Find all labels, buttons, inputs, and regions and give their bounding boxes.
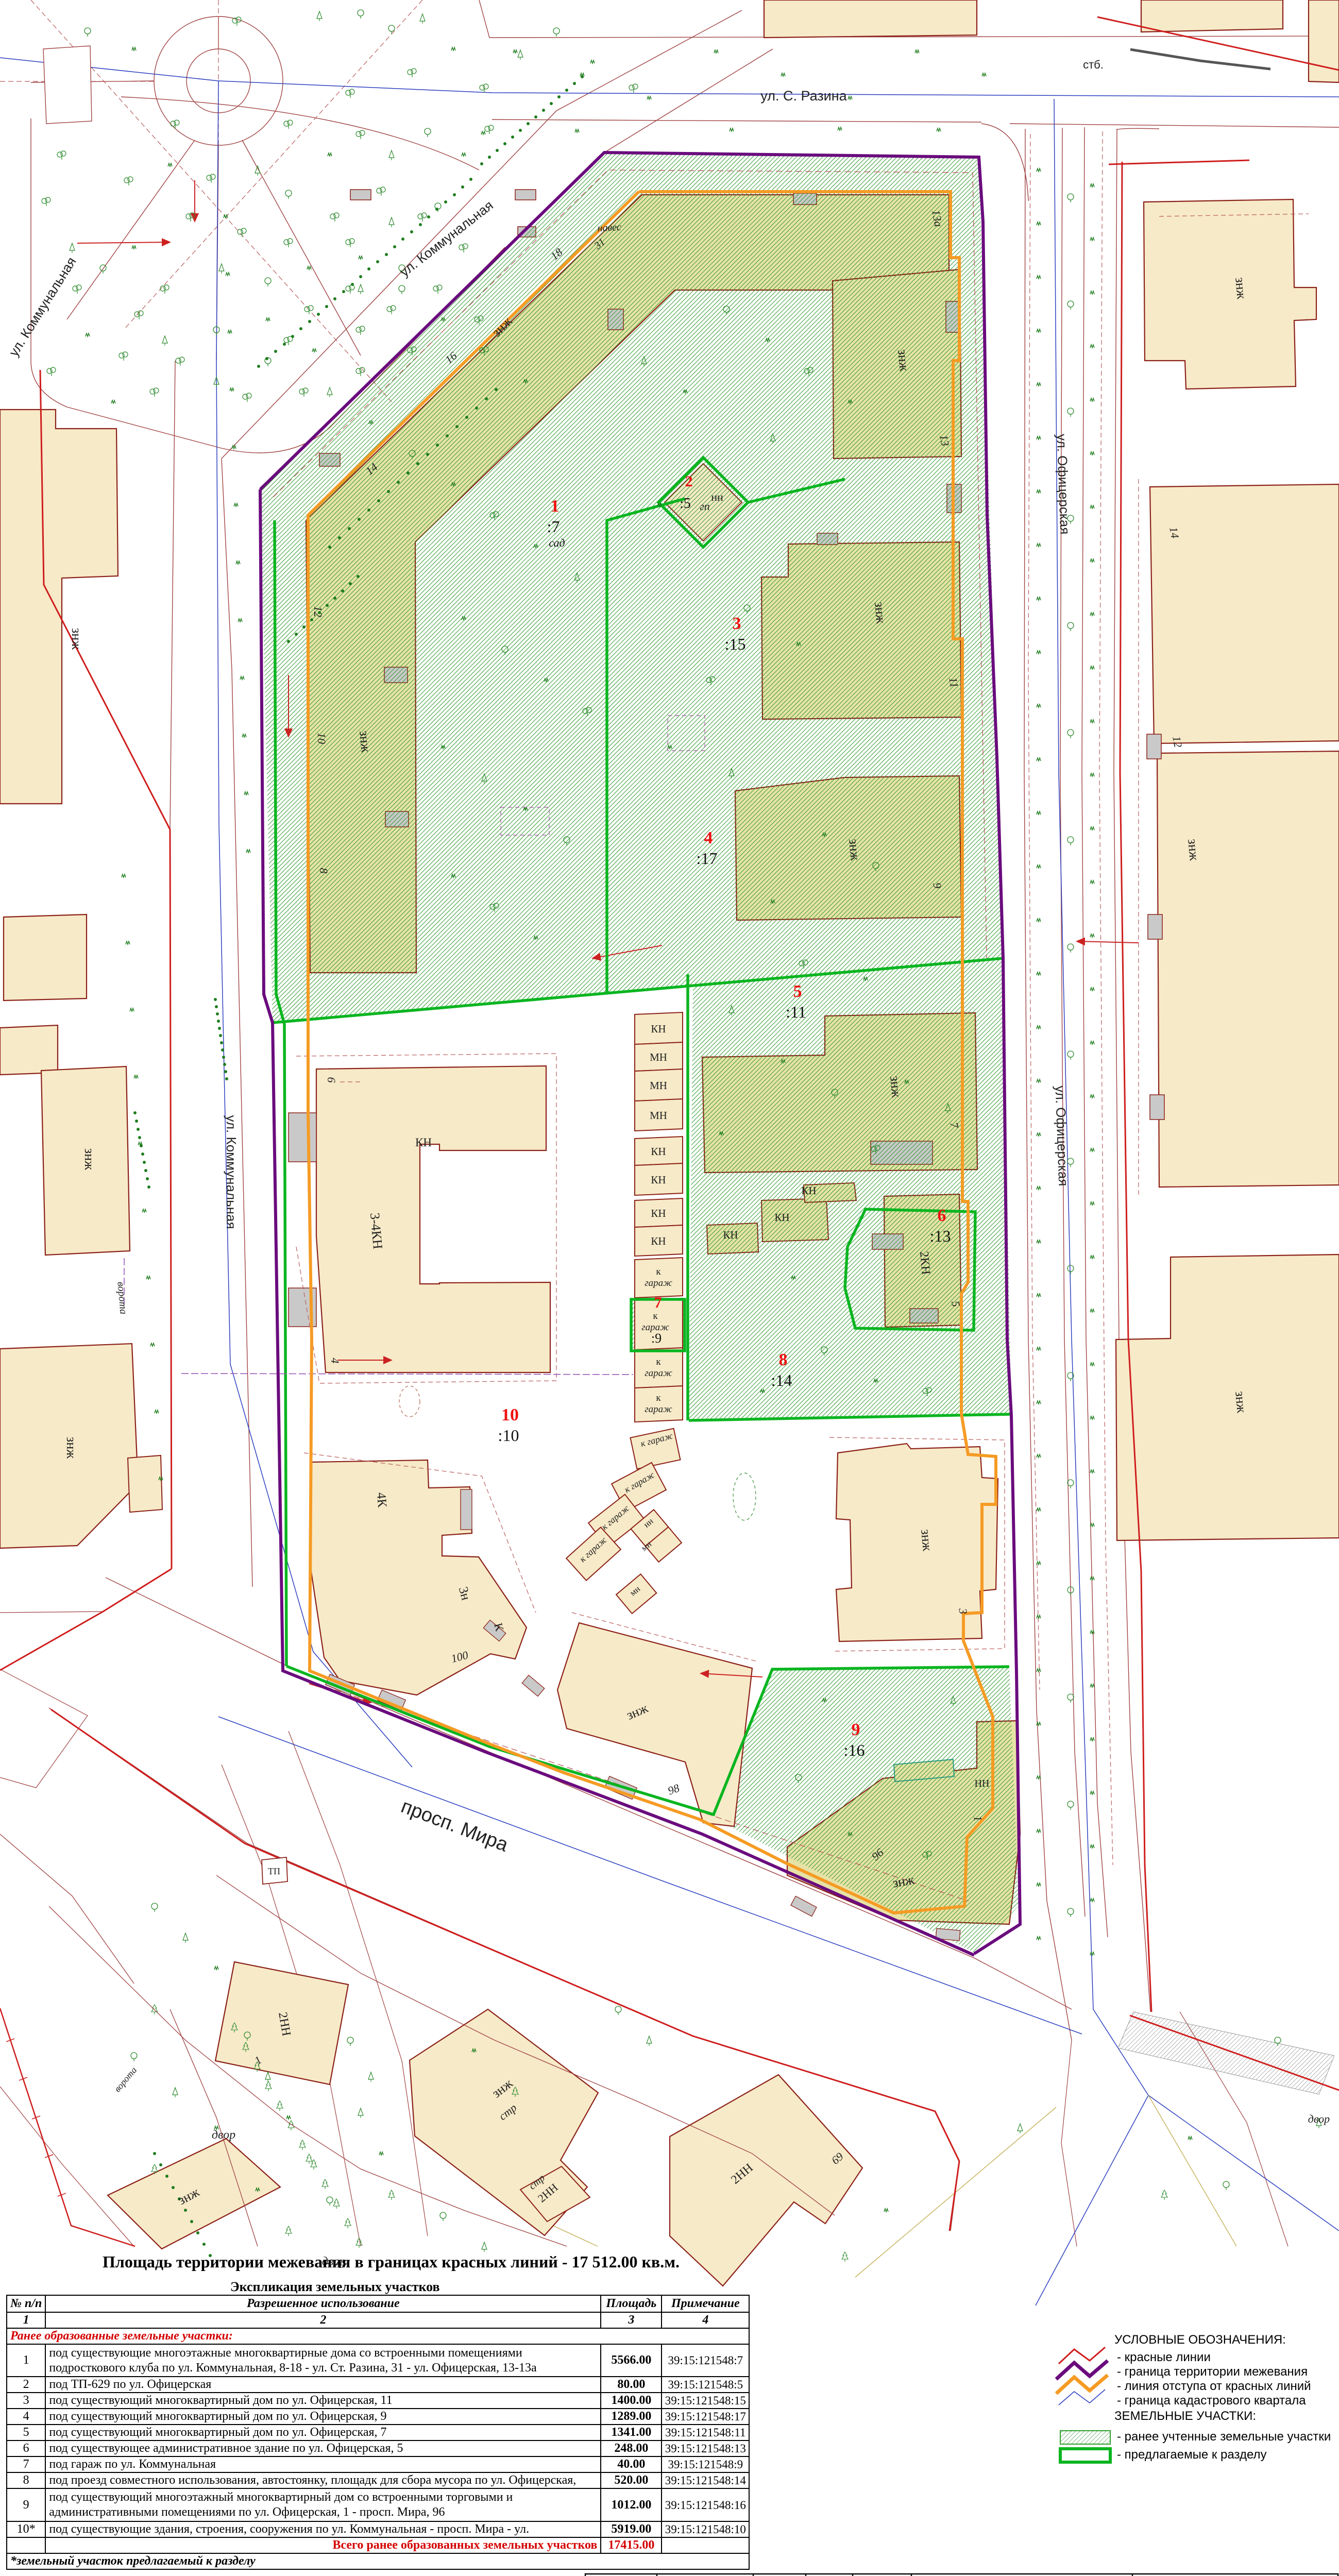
svg-text:10: 10: [501, 1405, 519, 1425]
svg-text:стб.: стб.: [1083, 58, 1104, 71]
svg-text:двор: двор: [1308, 2112, 1330, 2125]
svg-text:знж: знж: [1185, 838, 1202, 862]
svg-text:МН: МН: [650, 1051, 667, 1063]
svg-text:КН: КН: [651, 1023, 666, 1035]
svg-text:гараж: гараж: [645, 1404, 672, 1415]
svg-text::10: :10: [498, 1426, 519, 1445]
svg-text:КН: КН: [651, 1207, 666, 1219]
svg-text:ул. Коммунальная: ул. Коммунальная: [224, 1115, 239, 1229]
svg-text::7: :7: [547, 517, 560, 536]
svg-text:3: 3: [733, 614, 741, 633]
svg-text::9: :9: [651, 1331, 662, 1346]
svg-text:знж: знж: [64, 1437, 79, 1459]
svg-text:знж: знж: [872, 601, 889, 625]
svg-text:КН: КН: [415, 1136, 432, 1149]
svg-text:3-4КН: 3-4КН: [367, 1212, 385, 1250]
svg-text:7: 7: [654, 1294, 662, 1311]
svg-text:КН: КН: [801, 1184, 816, 1197]
svg-text:к: к: [653, 1311, 658, 1321]
svg-text:знж: знж: [357, 730, 374, 754]
svg-text:10: 10: [315, 733, 328, 744]
svg-text:4: 4: [329, 1358, 342, 1364]
svg-text:ул. Коммунальная: ул. Коммунальная: [397, 197, 496, 280]
svg-text:знж: знж: [918, 1529, 935, 1552]
svg-text:ворота: ворота: [112, 2065, 139, 2094]
svg-text:ворота: ворота: [115, 1281, 129, 1315]
svg-text:6: 6: [938, 1206, 946, 1225]
svg-text:знж: знж: [69, 628, 84, 650]
svg-text::17: :17: [697, 849, 718, 868]
svg-text:ТП: ТП: [268, 1866, 280, 1876]
svg-text:КН: КН: [651, 1235, 666, 1247]
svg-text::5: :5: [680, 496, 691, 512]
svg-text:нн: нн: [711, 490, 723, 503]
svg-text:2КН: 2КН: [917, 1251, 933, 1275]
svg-text:к: к: [656, 1393, 661, 1403]
svg-text:знж: знж: [1232, 277, 1249, 300]
svg-text:КН: КН: [651, 1174, 666, 1186]
svg-text:1: 1: [551, 497, 560, 516]
svg-text:4: 4: [704, 828, 713, 848]
svg-text:8: 8: [779, 1350, 788, 1369]
svg-text:к: к: [656, 1266, 661, 1277]
svg-text:гараж: гараж: [645, 1278, 672, 1289]
svg-text:гп: гп: [700, 500, 710, 513]
svg-text:к: к: [656, 1357, 661, 1367]
svg-text::16: :16: [844, 1741, 865, 1759]
svg-text:6: 6: [325, 1077, 338, 1083]
svg-text:знж: знж: [82, 1148, 97, 1171]
svg-text:12: 12: [1170, 735, 1184, 749]
svg-text:11: 11: [946, 676, 961, 688]
svg-text:знж: знж: [1232, 1391, 1249, 1414]
svg-text:13: 13: [937, 434, 952, 447]
svg-text:12: 12: [312, 606, 325, 617]
svg-text:3: 3: [956, 1607, 970, 1615]
svg-text:98: 98: [666, 1781, 681, 1797]
svg-text:знж: знж: [887, 1075, 904, 1099]
svg-text:КН: КН: [774, 1211, 789, 1224]
svg-text:навес: навес: [597, 222, 621, 234]
svg-text:МН: МН: [650, 1079, 667, 1092]
svg-text:КН: КН: [723, 1229, 738, 1241]
svg-text:ул. С. Разина: ул. С. Разина: [760, 88, 847, 104]
svg-text:2: 2: [685, 473, 693, 490]
svg-text:гараж: гараж: [645, 1368, 672, 1379]
svg-text:МН: МН: [650, 1109, 667, 1122]
svg-text:4К: 4К: [374, 1492, 389, 1509]
svg-text:5: 5: [793, 982, 802, 1001]
svg-text:14: 14: [1167, 526, 1181, 539]
svg-text::13: :13: [930, 1227, 951, 1245]
svg-text:КН: КН: [651, 1145, 666, 1158]
svg-text::15: :15: [725, 635, 746, 653]
svg-text:просп. Мира: просп. Мира: [398, 1795, 512, 1856]
svg-text:8: 8: [317, 868, 330, 874]
svg-text:знж: знж: [846, 838, 863, 862]
svg-text:знж: знж: [895, 349, 912, 372]
svg-text:9: 9: [852, 1720, 860, 1739]
svg-text::14: :14: [771, 1371, 792, 1389]
svg-text:ул. Офицерская: ул. Офицерская: [1053, 1086, 1072, 1187]
svg-text::11: :11: [786, 1003, 806, 1021]
svg-text:сад: сад: [549, 536, 565, 549]
svg-text:НН: НН: [975, 1778, 990, 1789]
svg-text:ул. Коммунальная: ул. Коммунальная: [6, 255, 79, 359]
